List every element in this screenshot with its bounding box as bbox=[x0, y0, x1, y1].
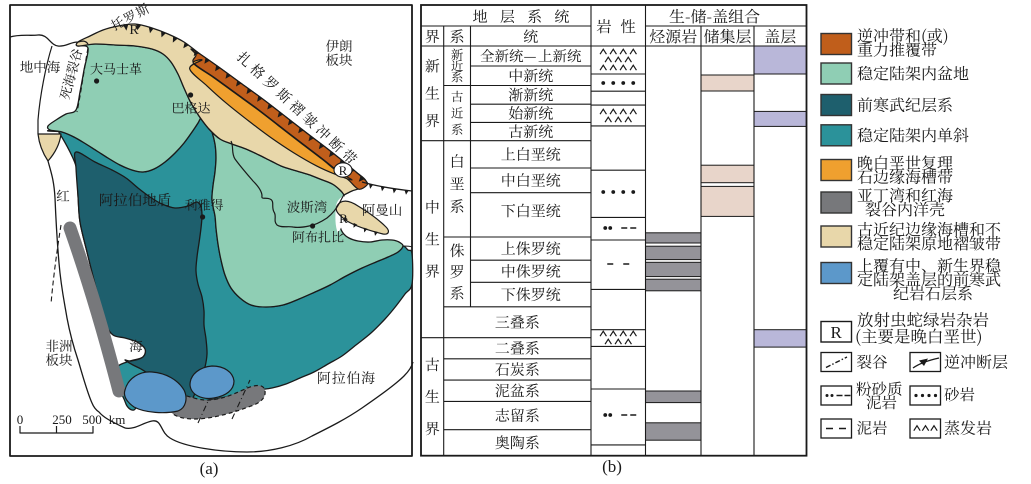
svg-text:R: R bbox=[339, 163, 348, 178]
svg-text:250: 250 bbox=[52, 412, 72, 427]
svg-text:(a): (a) bbox=[200, 459, 219, 478]
svg-text:R: R bbox=[129, 23, 139, 38]
svg-text:(b): (b) bbox=[602, 457, 622, 476]
svg-text:R: R bbox=[339, 211, 348, 226]
svg-text:R: R bbox=[831, 323, 843, 342]
svg-text:500: 500 bbox=[82, 412, 102, 427]
svg-text:0: 0 bbox=[17, 412, 24, 427]
svg-text:km: km bbox=[109, 412, 126, 427]
